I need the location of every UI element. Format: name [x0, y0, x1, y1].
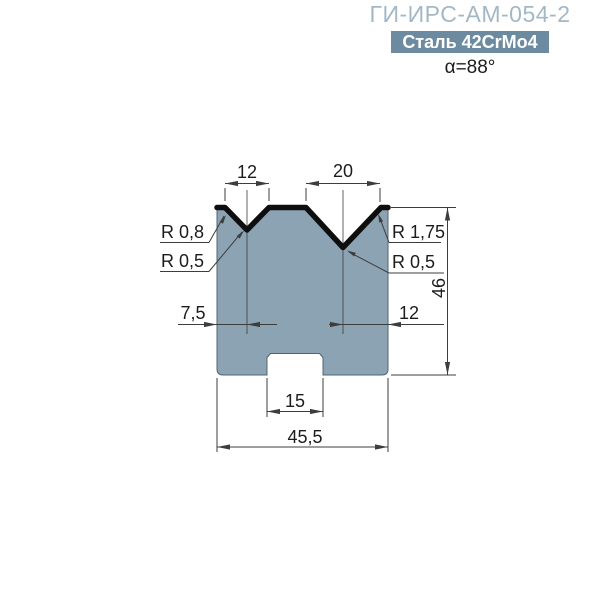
radius-right-shoulder: R 1,75	[392, 222, 445, 242]
radius-left-groove: R 0,5	[161, 251, 204, 271]
dim-v1-offset: 7,5	[180, 303, 205, 323]
radius-right-groove: R 0,5	[392, 252, 435, 272]
technical-drawing: 12 20 7,5 12 46 15 45,5 R 0,8 R 0,5 R 1,…	[0, 0, 600, 600]
dim-slot-width: 15	[285, 391, 305, 411]
title-block: ГИ-ИРС-АМ-054-2 Сталь 42CrMo4 α=88°	[330, 0, 600, 78]
drawing-sheet: ГИ-ИРС-АМ-054-2 Сталь 42CrMo4 α=88°	[0, 0, 600, 600]
die-angle-label: α=88°	[330, 57, 600, 78]
dim-overall-width: 45,5	[287, 427, 322, 447]
dim-overall-height: 46	[429, 278, 449, 298]
dim-v2-offset: 12	[399, 303, 419, 323]
radius-left-shoulder: R 0,8	[161, 222, 204, 242]
material-badge: Сталь 42CrMo4	[391, 31, 548, 53]
dim-v2-opening: 20	[333, 161, 353, 181]
dim-v1-opening: 12	[237, 162, 257, 182]
part-number-title: ГИ-ИРС-АМ-054-2	[330, 0, 600, 28]
